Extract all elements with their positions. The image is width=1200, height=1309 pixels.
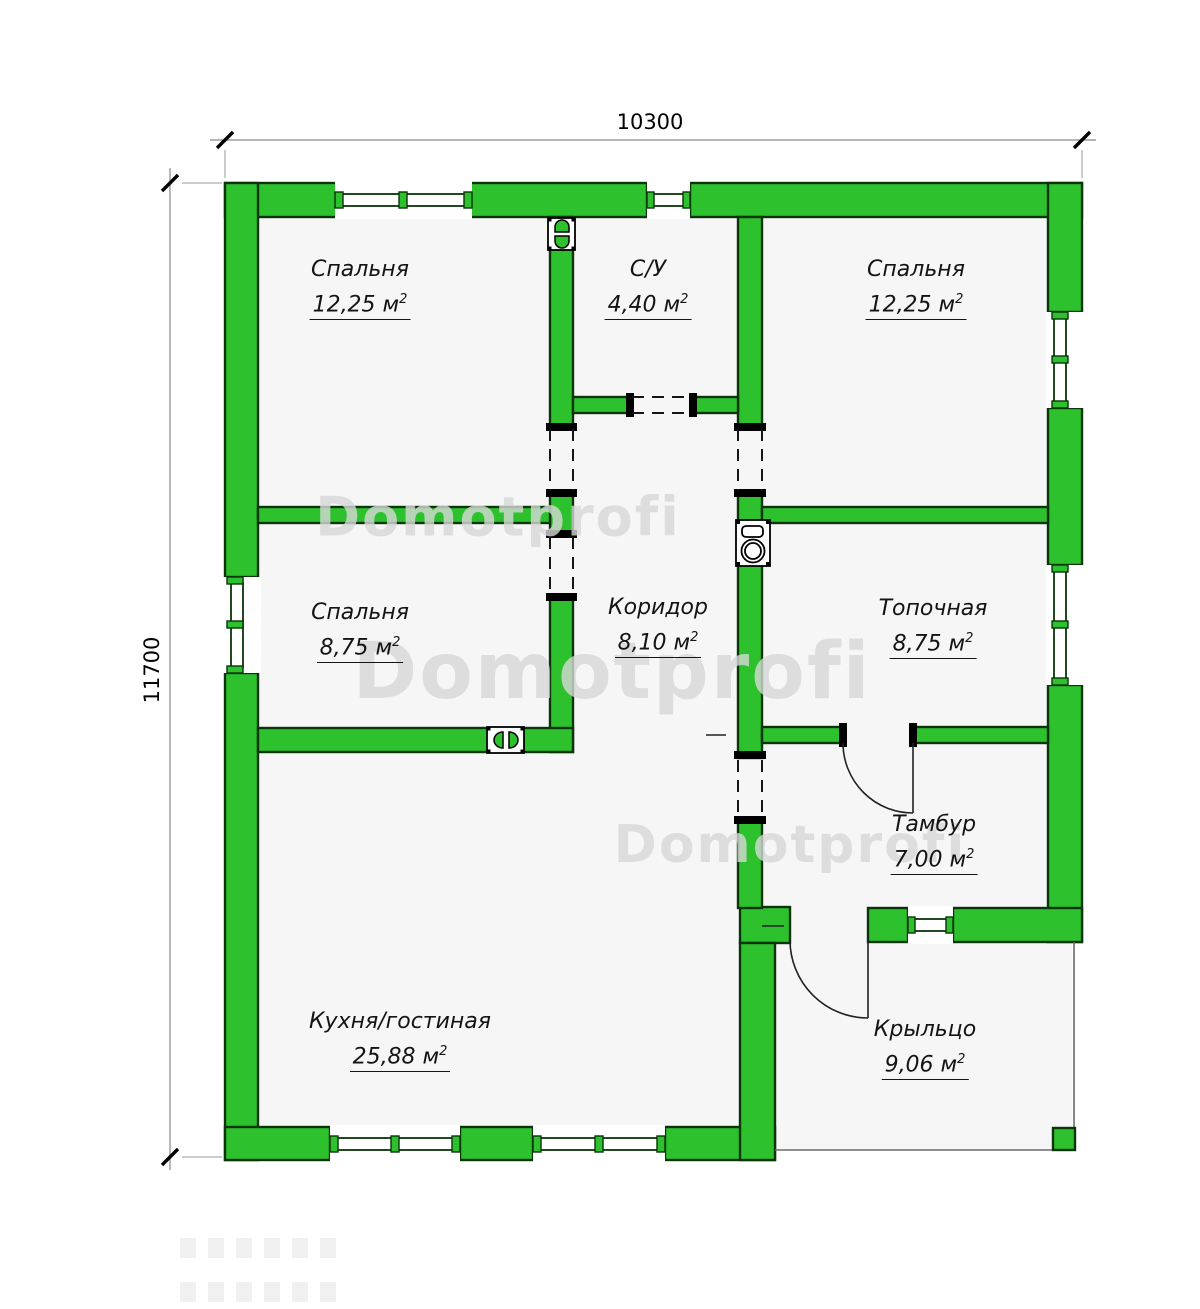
room-area: 7,00 м2 (891, 843, 978, 875)
window (330, 1125, 460, 1163)
room-area: 8,75 м2 (317, 631, 404, 663)
window (647, 181, 690, 219)
room-label-bedroom-ml: Спальня 8,75 м2 (311, 601, 409, 663)
room-label-kitchen-living: Кухня/гостиная 25,88 м2 (309, 1010, 491, 1072)
room-name: Спальня (310, 258, 411, 282)
window (533, 1125, 665, 1163)
room-name: С/У (605, 258, 692, 282)
room-name: Спальня (866, 258, 967, 282)
porch-column (1053, 1128, 1075, 1150)
room-name: Коридор (608, 596, 708, 620)
room-name: Топочная (879, 597, 988, 621)
window (223, 577, 261, 673)
room-label-bedroom-tl: Спальня 12,25 м2 (310, 258, 411, 320)
watermark: Domotprofi (315, 486, 681, 549)
room-name: Кухня/гостиная (309, 1010, 491, 1034)
room-area: 12,25 м2 (866, 288, 967, 320)
floor-plan: Domotprofi Domotprofi Domotprofi Спальня… (0, 0, 1200, 1309)
faint-marks (180, 1248, 345, 1292)
room-label-bedroom-tr: Спальня 12,25 м2 (866, 258, 967, 320)
dimension-height: 11700 (140, 637, 164, 704)
room-area: 12,25 м2 (310, 288, 411, 320)
dimension-width: 10300 (617, 110, 684, 134)
window (1046, 312, 1084, 408)
room-label-boiler-room: Топочная 8,75 м2 (879, 597, 988, 659)
room-area: 8,75 м2 (890, 627, 977, 659)
room-label-vestibule: Тамбур 7,00 м2 (891, 813, 978, 875)
window (908, 906, 953, 944)
room-name: Спальня (311, 601, 409, 625)
window (335, 181, 472, 219)
room-label-bathroom: С/У 4,40 м2 (605, 258, 692, 320)
room-label-corridor: Коридор 8,10 м2 (608, 596, 708, 658)
ventilation-icon (487, 727, 524, 753)
chimney-icon (548, 218, 575, 250)
room-name: Крыльцо (874, 1018, 976, 1042)
dimension-line-left (162, 168, 222, 1170)
room-area: 8,10 м2 (615, 626, 702, 658)
room-area: 25,88 м2 (350, 1040, 451, 1072)
window (1046, 565, 1084, 685)
room-area: 4,40 м2 (605, 288, 692, 320)
room-name: Тамбур (891, 813, 978, 837)
room-label-porch: Крыльцо 9,06 м2 (874, 1018, 976, 1080)
room-area: 9,06 м2 (882, 1048, 969, 1080)
boiler-icon (736, 520, 770, 566)
dimension-line-top (210, 132, 1096, 178)
